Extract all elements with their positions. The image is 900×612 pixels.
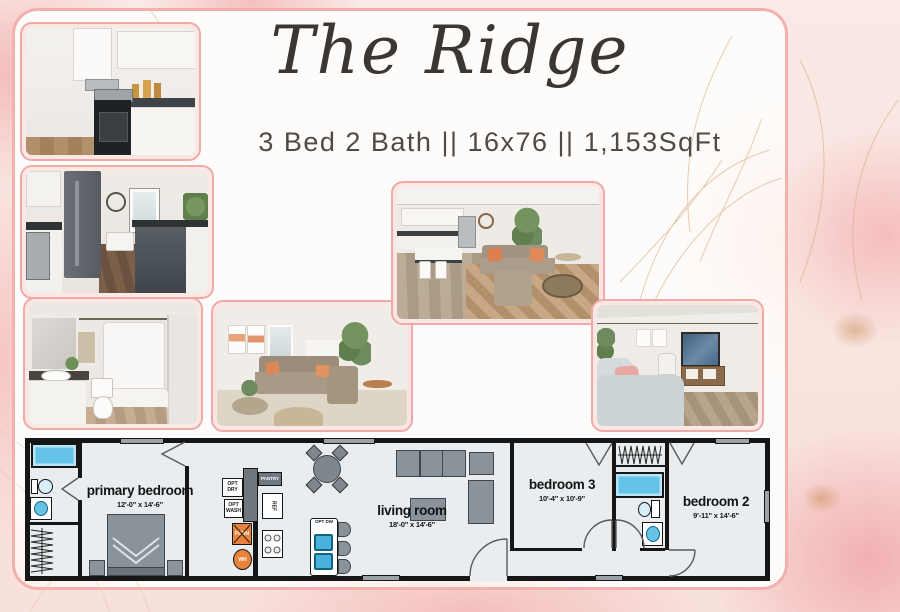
pillow (315, 364, 329, 377)
range (262, 530, 283, 558)
plant (63, 356, 81, 371)
base-cabinet (186, 227, 208, 293)
wall-segment (253, 522, 258, 576)
rug (671, 392, 758, 426)
wall-segment (510, 548, 582, 551)
closet-door (670, 443, 694, 464)
wall-segment (78, 500, 82, 576)
wood-floor (26, 137, 97, 155)
page-subtitle: 3 Bed 2 Bath || 16x76 || 1,153SqFt (200, 127, 780, 158)
bar-stool (419, 261, 431, 279)
coffee-table (274, 407, 323, 426)
room-name: bedroom 3 (512, 478, 612, 492)
bath2-sink-basin (646, 526, 660, 542)
room-name: bedroom 2 (666, 495, 766, 509)
pantry-label: PANTRY (261, 477, 279, 482)
door-bedroom2 (669, 550, 695, 576)
room-label-primary-bedroom: primary bedroom 12'-0" x 14'-6" (80, 484, 200, 509)
room-name: living room (352, 504, 472, 518)
sofa (396, 450, 466, 477)
photo-bathroom (25, 299, 201, 428)
dishwasher (135, 227, 186, 293)
wood-floor (99, 244, 139, 293)
primary-sink-basin (34, 501, 48, 516)
dryer: OPT DRY (222, 478, 243, 497)
primary-toilet-tank (31, 479, 38, 494)
room-dims: 12'-0" x 14'-6" (80, 500, 200, 509)
pillow (487, 247, 503, 262)
console-drawer (703, 369, 716, 379)
wall-art (228, 325, 245, 353)
furnace-label: FURN (235, 531, 249, 537)
oven-window (99, 112, 128, 142)
refrigerator (64, 171, 100, 278)
window (268, 325, 293, 358)
headboard (108, 567, 164, 575)
window (362, 575, 400, 581)
side-table (363, 380, 392, 387)
door-entry (470, 539, 507, 576)
door-primary-bedroom (162, 442, 185, 466)
room-dims: 18'-0" x 14'-6" (352, 520, 472, 529)
photo-living-room (213, 302, 411, 430)
flyer-page: The Ridge 3 Bed 2 Bath || 16x76 || 1,153… (0, 0, 900, 612)
washer: OPT WASH (224, 499, 243, 518)
cushion-seam (419, 451, 421, 476)
toilet-tank (91, 378, 113, 398)
armchair (469, 452, 494, 475)
toilet-bowl (93, 396, 113, 419)
closet-hangers (619, 446, 661, 464)
canister (154, 83, 161, 98)
pillow (266, 362, 281, 376)
canister (143, 80, 151, 98)
wall-segment (30, 522, 78, 525)
water-heater-label: WH (238, 557, 246, 563)
wall-art (247, 325, 264, 353)
island-sink (314, 534, 333, 551)
photo-kitchen-closeup (22, 24, 199, 159)
tv-art (681, 332, 720, 367)
cushion-seam (442, 451, 444, 476)
ceiling (397, 187, 599, 205)
floorplan: OPT DRY OPT WASH FURN WH PANTRY REF OPT … (25, 438, 770, 581)
wall-segment (507, 576, 770, 581)
door-bath2 (616, 520, 644, 548)
upper-cabinet (73, 28, 112, 81)
bar-stool (338, 559, 351, 574)
dryer-label: OPT DRY (224, 482, 241, 493)
door (167, 315, 199, 424)
range (26, 232, 50, 280)
bar-stool (435, 261, 447, 279)
primary-tub (31, 443, 78, 468)
ceiling (597, 305, 758, 324)
primary-bed (107, 514, 165, 576)
photo-kitchen-dining (22, 167, 212, 297)
wall-segment (78, 443, 82, 478)
nightstand (167, 560, 183, 576)
vanity-base (29, 380, 86, 425)
base-cabinet (127, 107, 197, 157)
bar-stool (338, 541, 351, 556)
door-bedroom3 (584, 520, 612, 548)
room-dims: 9'-11" x 14'-6" (666, 511, 766, 520)
room-label-living-room: living room 18'-0" x 14'-6" (352, 504, 472, 529)
closet-door (586, 443, 612, 465)
accent-chair (658, 353, 676, 374)
water-heater: WH (233, 549, 252, 570)
washer-label: OPT WASH (226, 503, 241, 514)
primary-toilet-bowl (38, 479, 53, 494)
upper-cabinet (26, 171, 61, 207)
bar-stool (338, 522, 351, 537)
pillow (529, 247, 545, 262)
bed-duvet (597, 375, 684, 426)
island-sink (314, 553, 333, 570)
room-label-bedroom-2: bedroom 2 9'-11" x 14'-6" (666, 495, 766, 520)
photo-open-concept (393, 183, 603, 323)
countertop (132, 220, 208, 227)
refrigerator: REF (262, 493, 283, 519)
bath2-toilet-bowl (638, 502, 651, 517)
bath2-toilet-tank (651, 500, 660, 518)
wall-clock (106, 192, 126, 212)
wall-art (636, 329, 651, 347)
coffee-table (542, 274, 582, 298)
door-primary-bath (62, 478, 78, 500)
closet-hangers (31, 530, 53, 572)
nightstand (89, 560, 105, 576)
room-dims: 10'-4" x 10'-9" (512, 494, 612, 503)
upper-cabinet (117, 31, 197, 70)
pantry: PANTRY (258, 472, 282, 486)
window (120, 438, 164, 444)
countertop (26, 222, 62, 229)
dishwasher-label: OPT DW (312, 520, 336, 525)
room-name: primary bedroom (80, 484, 200, 498)
dining-set (106, 232, 133, 251)
window (595, 575, 623, 581)
sofa-chaise (494, 270, 532, 306)
wall-segment (640, 548, 665, 551)
room-label-bedroom-3: bedroom 3 10'-4" x 10'-9" (512, 478, 612, 503)
upper-cabinets (401, 208, 464, 226)
wall-art (652, 329, 667, 347)
canister (132, 84, 139, 98)
photo-bedroom (593, 301, 762, 430)
console-drawer (686, 369, 699, 379)
furnace: FURN (232, 523, 252, 545)
side-table (555, 253, 581, 261)
window (715, 438, 750, 444)
window (323, 438, 375, 444)
utility-wall-cabinet (243, 468, 258, 522)
wall-segment (616, 465, 665, 467)
page-title: The Ridge (220, 12, 680, 89)
dining-table (313, 455, 341, 483)
sofa-chaise (327, 366, 357, 404)
fridge-handle (75, 181, 79, 266)
plant (236, 380, 263, 399)
refrigerator-label: REF (270, 501, 276, 511)
bath2-tub (614, 472, 664, 498)
refrigerator (458, 216, 476, 248)
wall-segment (25, 576, 470, 581)
